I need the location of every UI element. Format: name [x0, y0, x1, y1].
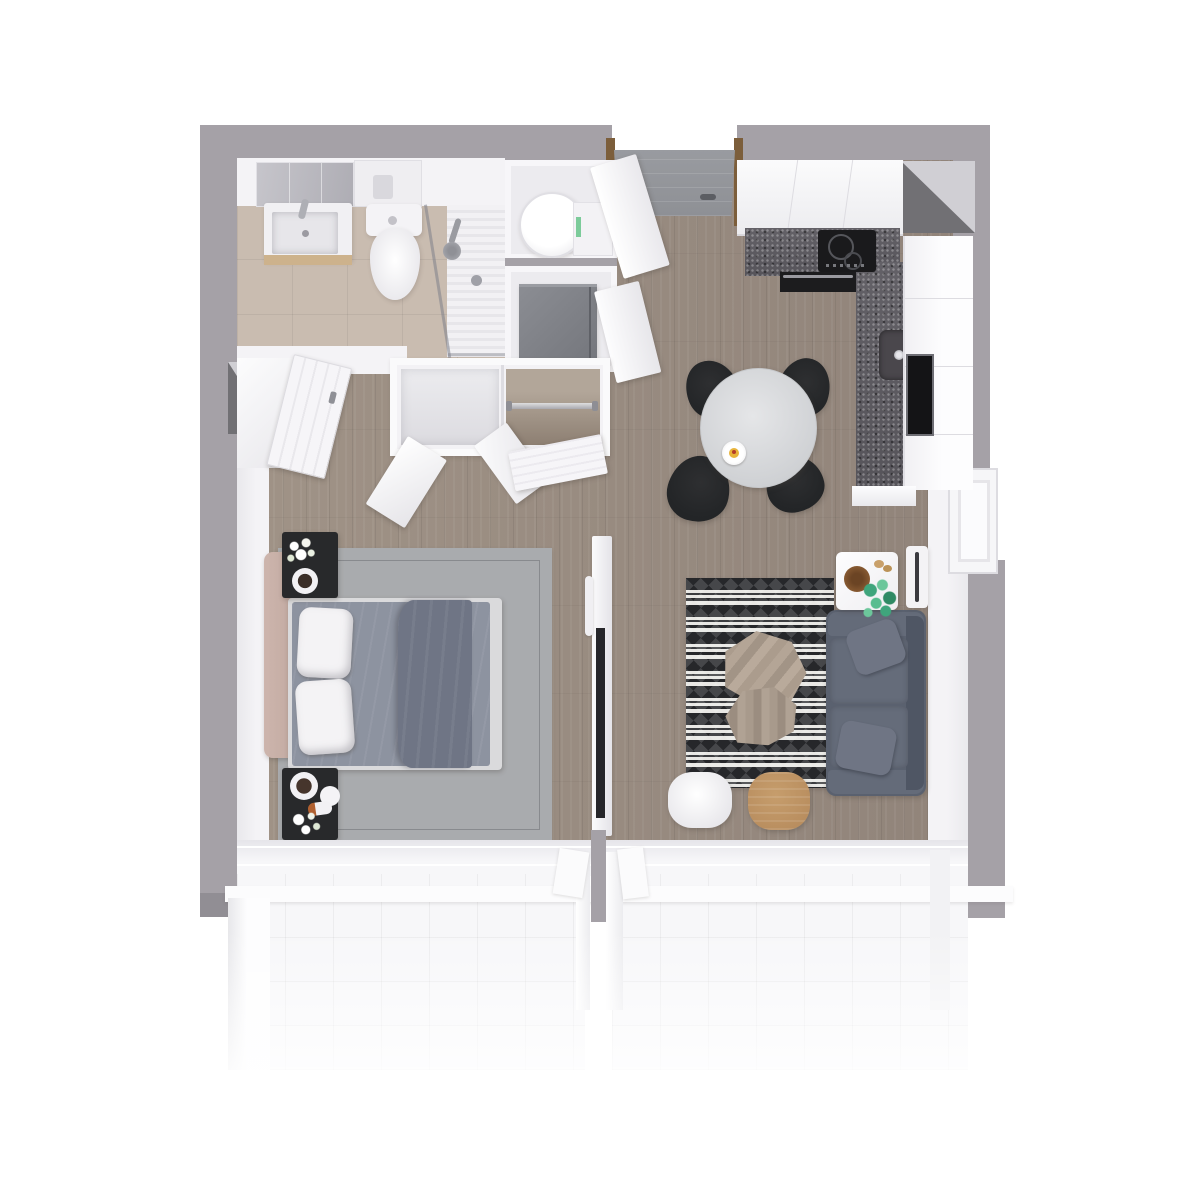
tv-bracket [585, 576, 593, 636]
cooktop-controls-icon [826, 264, 868, 267]
oven-handle-icon [783, 275, 853, 278]
rail-end-icon [506, 401, 512, 411]
wall-right-lower [968, 560, 1005, 918]
stool-white [668, 772, 732, 828]
rail-end-icon [592, 401, 598, 411]
appliance-label-icon [576, 217, 581, 237]
bed-blanket [398, 600, 472, 768]
wall-left [200, 125, 237, 893]
nightstand-bottom [282, 768, 338, 840]
cabinet-seam [842, 160, 853, 234]
stool-wood [748, 772, 810, 830]
mirror-seam [321, 163, 322, 206]
built-in-oven-top [906, 354, 934, 436]
fridge-door-seam [589, 287, 591, 365]
kitchen-end-panel [852, 486, 916, 506]
cabinet-seam [905, 298, 973, 299]
balcony-divider-wall [591, 830, 606, 922]
cooktop [818, 230, 876, 272]
vanity-unit [264, 203, 352, 261]
toilet-bowl [370, 228, 420, 300]
sink-drain-icon [302, 230, 309, 237]
shower-head-icon [443, 242, 461, 260]
shower-drain-icon [471, 275, 482, 286]
vanity-wood-trim [264, 255, 352, 265]
hanging-rail-icon [508, 403, 598, 409]
toilet-flush-icon [388, 216, 397, 225]
bed-pillow [294, 678, 355, 756]
shower-glass-edge [448, 353, 505, 356]
wall-top-left [200, 125, 612, 160]
nightstand-top [282, 532, 338, 598]
door-handle-icon [700, 194, 716, 200]
kitchen-upper-cabinets [737, 160, 903, 236]
tv-screen [596, 628, 605, 818]
wardrobe-rail-compartment [506, 369, 600, 445]
radiator-vent-icon [915, 552, 919, 602]
mirror-seam [289, 163, 290, 206]
floor-plan-canvas [0, 0, 1200, 1200]
sofa-backrest [906, 616, 924, 790]
flower-bouquet-icon [286, 806, 322, 840]
oven-front [780, 272, 856, 292]
houseplant-icon [856, 572, 904, 624]
radiator [906, 546, 928, 608]
cup-icon [290, 772, 318, 800]
burner-icon [844, 252, 862, 270]
wardrobe-shelf-compartment [401, 369, 499, 445]
bathroom-wall-cabinet [354, 160, 422, 207]
cabinet-seam [787, 160, 798, 234]
deco-egg-icon [883, 565, 892, 572]
dining-table [700, 368, 817, 488]
flower-bouquet-icon [284, 536, 318, 570]
coffee-cup [722, 441, 746, 465]
window-frame-inner [958, 480, 990, 562]
toilet [364, 204, 424, 302]
fridge [519, 284, 597, 365]
toilet-paper-holder-icon [373, 175, 393, 199]
render-fade-overlay [180, 930, 1040, 1190]
coffee-cup-fleck [732, 450, 736, 454]
door-handle-icon [328, 391, 337, 404]
bed-pillow [296, 607, 354, 680]
cup-icon [292, 568, 318, 594]
sofa-throw-pillow [834, 719, 898, 777]
window-top-right [901, 161, 975, 233]
sofa [826, 610, 926, 796]
window-glass-icon [901, 161, 975, 233]
